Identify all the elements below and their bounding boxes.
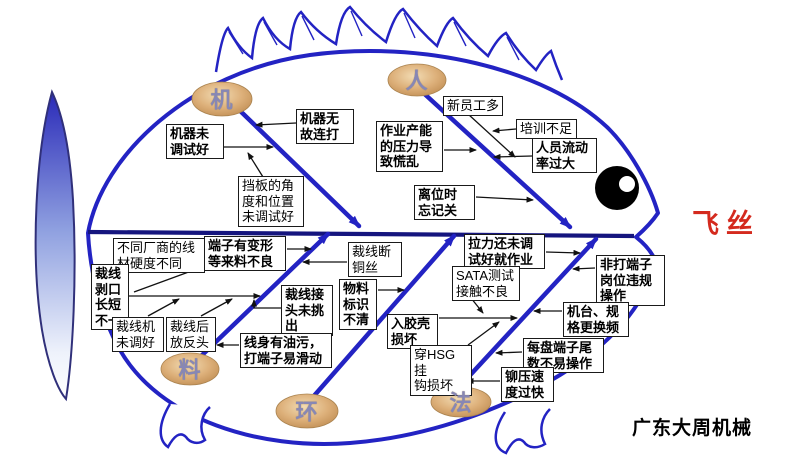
bone-label-environment: 环	[295, 394, 318, 426]
bone-label-machine: 机	[210, 82, 233, 114]
cause-box-capacity-pressure: 作业产能 的压力导 致慌乱	[376, 121, 443, 172]
bone-label-material: 料	[178, 352, 201, 384]
cause-box-forget-off: 离位时 忘记关	[414, 185, 475, 220]
cause-box-insufficient-training: 培训不足	[516, 119, 577, 139]
bone-label-method: 法	[449, 385, 472, 417]
cause-box-shell-damage: 入胶壳 损坏	[387, 314, 438, 349]
cause-box-high-turnover: 人员流动 率过大	[532, 138, 597, 173]
cause-box-crimp-speed: 铆压速 度过快	[501, 367, 554, 402]
watermark-text: 广东大周机械	[632, 413, 752, 440]
fishbone-diagram: 机 人 料 环 法 机器未 调试好 机器无 故连打 挡板的角 度和位置 未调试好…	[0, 0, 796, 468]
cause-box-label-unclear: 物料 标识 不清	[339, 279, 377, 330]
bone-label-man: 人	[405, 63, 428, 95]
anal-fin	[496, 409, 550, 453]
pelvic-fin	[161, 404, 210, 447]
cause-box-terminal-deformed: 端子有变形 等来料不良	[204, 236, 286, 271]
fishbone-svg	[0, 0, 796, 468]
cause-box-frequent-changeover: 机台、规 格更换频	[563, 302, 629, 337]
cause-box-sata-contact: SATA测试 接触不良	[452, 266, 520, 301]
cause-box-new-employees: 新员工多	[443, 96, 503, 116]
cause-box-illegal-operation: 非打端子 岗位违规 操作	[596, 255, 665, 306]
cause-box-machine-random-strike: 机器无 故连打	[296, 109, 354, 144]
cause-box-joint-not-picked: 裁线接 头未挑 出	[281, 285, 333, 336]
cause-box-machine-not-tuned: 机器未 调试好	[166, 124, 224, 159]
tail-fin	[36, 92, 75, 399]
fish-eye-highlight	[619, 176, 635, 192]
cause-box-reversed-after-cut: 裁线后 放反头	[166, 317, 216, 352]
cause-box-oily-wire: 线身有油污， 打端子易滑动	[240, 333, 332, 368]
cause-box-baffle-angle: 挡板的角 度和位置 未调试好	[238, 176, 304, 227]
cause-box-cutter-not-tuned: 裁线机 未调好	[112, 317, 164, 352]
cause-box-tension-not-tuned: 拉力还未调 试好就作业	[464, 234, 545, 269]
cause-box-copper-break: 裁线断 铜丝	[348, 242, 402, 277]
effect-label: 飞丝	[692, 202, 760, 241]
